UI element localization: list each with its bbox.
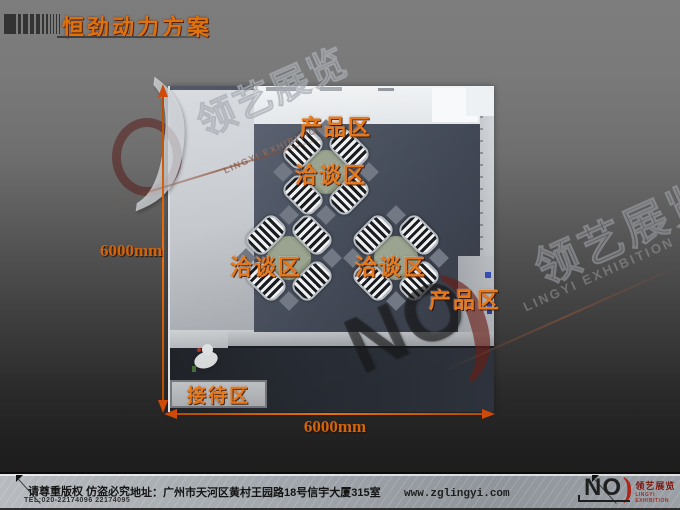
barcode-bar: [59, 14, 60, 34]
barcode-bar: [4, 14, 16, 34]
company-logo: NO ) 领艺展览 LINGYI EXHIBITION: [584, 476, 680, 504]
website-url: www.zglingyi.com: [404, 488, 510, 500]
zone-label-product-right: 产品区: [405, 283, 525, 315]
logo-brand-cn: 领艺展览: [635, 482, 680, 492]
zone-label-meeting-2: 洽谈区: [206, 250, 326, 282]
logo-no-letters: NO: [584, 476, 622, 500]
arrow-left-icon: [164, 409, 177, 419]
barcode-icon: [4, 14, 62, 34]
width-dimension-label: 6000mm: [290, 417, 380, 437]
height-dimension-label: 6000mm: [100, 241, 160, 261]
footer-bar: 请尊重版权 仿盗必究 TEL:020-22174096 22174095 地址：…: [0, 472, 680, 510]
design-sheet: 恒劲动力方案 接待区: [0, 0, 680, 510]
zone-label-meeting-1: 洽谈区: [271, 158, 391, 190]
barcode-bar: [36, 14, 40, 34]
vertical-dimension-line: [162, 96, 164, 402]
zone-label-meeting-3: 洽谈区: [331, 250, 451, 282]
zone-label-reception: 接待区: [187, 381, 250, 408]
barcode-bar: [46, 14, 48, 34]
barcode-bar: [50, 14, 51, 34]
logo-brand-en: LINGYI EXHIBITION: [635, 492, 680, 504]
watermark-brand-cn: 领艺展览: [523, 161, 680, 298]
arrow-right-icon: [482, 409, 495, 419]
horizontal-dimension-line: [172, 413, 484, 415]
barcode-bar: [30, 14, 34, 34]
barcode-bar: [53, 14, 54, 34]
arrow-up-icon: [158, 84, 168, 97]
barcode-bar: [56, 14, 57, 34]
title-underline: [57, 36, 197, 38]
barcode-bar: [23, 14, 28, 34]
barcode-bar: [42, 14, 44, 34]
company-address: 地址：广州市天河区黄村王园路18号信宇大厦315室: [130, 484, 381, 500]
zone-label-product-top: 产品区: [276, 110, 396, 142]
barcode-bar: [18, 14, 21, 34]
logo-underline: [578, 500, 630, 502]
telephone-numbers: TEL:020-22174096 22174095: [24, 497, 130, 504]
logo-swoosh-icon: ): [623, 476, 632, 501]
logo-text-block: 领艺展览 LINGYI EXHIBITION: [635, 482, 680, 504]
watermark-brand-en: LINGYI EXHIBITION: [521, 234, 677, 314]
